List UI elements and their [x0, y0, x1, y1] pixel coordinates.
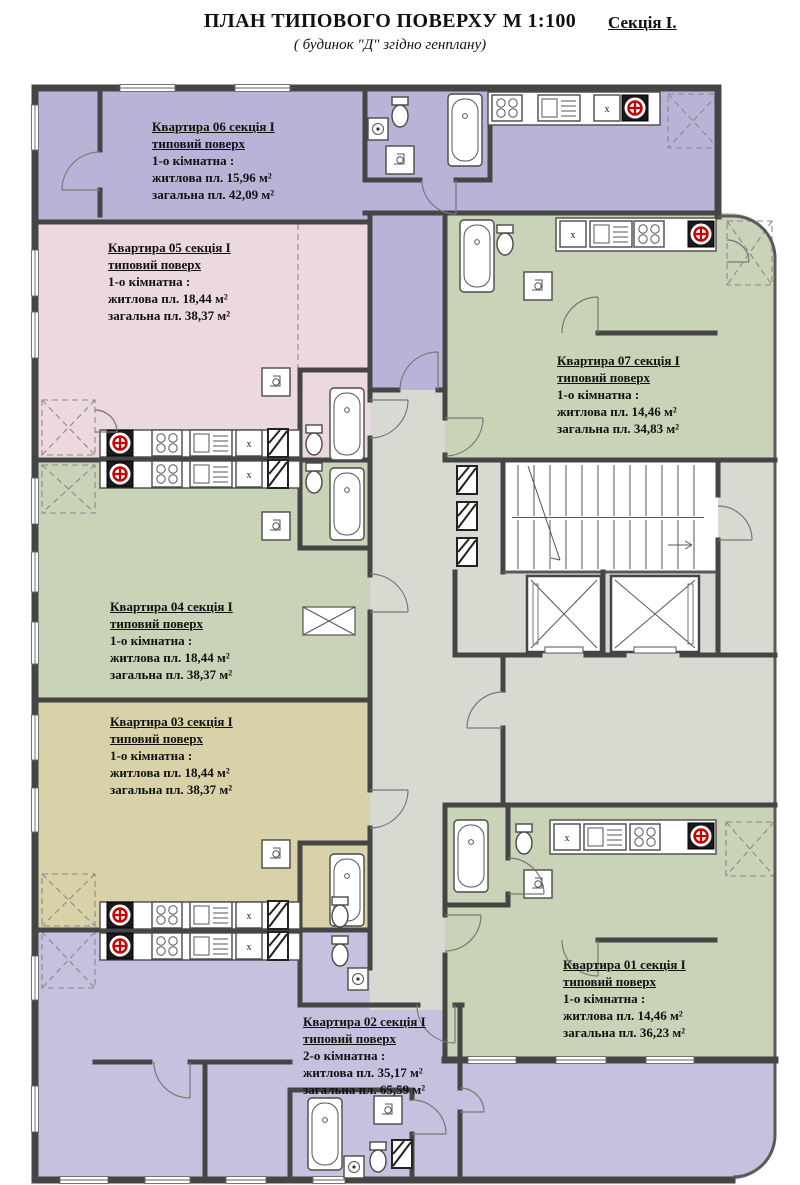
shower-apt03 [262, 840, 290, 868]
washer-apt06 [368, 118, 388, 140]
hob-icon-apt04 [152, 461, 182, 487]
vent-hatch-apt02 [268, 932, 288, 960]
closet-apt04 [303, 607, 355, 635]
apartment-total-area: загальна пл. 36,23 м² [563, 1024, 686, 1041]
toilet-apt04 [306, 463, 322, 493]
shaft-label: х [247, 439, 252, 450]
shaft-hatch-2 [457, 502, 477, 530]
vent-hatch-apt05 [268, 429, 288, 457]
apartment-total-area: загальна пл. 34,83 м² [557, 420, 680, 437]
apartment-living-area: житлова пл. 15,96 м² [152, 169, 275, 186]
sink-icon-apt01 [584, 824, 626, 850]
stove-icon-apt03 [107, 902, 133, 928]
shower-apt05 [262, 368, 290, 396]
apartment-name: Квартира 04 секція I [110, 598, 233, 615]
shaft-label: х [247, 470, 252, 481]
washer-apt02 [348, 968, 368, 990]
sink-icon-apt05 [190, 430, 232, 456]
toilet-apt06 [392, 97, 408, 127]
elevator-1 [527, 576, 601, 653]
toilet-apt07 [497, 225, 513, 255]
stove-icon-apt02 [107, 933, 133, 959]
apartment-floor: типовий поверх [152, 135, 275, 152]
shaft-hatch-3 [457, 538, 477, 566]
vent-hatch-apt03 [268, 901, 288, 929]
stove-icon-apt07 [688, 221, 714, 247]
hob-icon-apt07 [634, 221, 664, 247]
shaft-label: х [247, 911, 252, 922]
apartment-total-area: загальна пл. 65,59 м² [303, 1081, 426, 1098]
apartment-name: Квартира 06 секція I [152, 118, 275, 135]
apartment-rooms: 1-о кімнатна : [152, 152, 275, 169]
bathtub-apt02 [308, 1098, 342, 1170]
shower-apt04 [262, 512, 290, 540]
apartment-name: Квартира 07 секція I [557, 352, 680, 369]
apartment-total-area: загальна пл. 38,37 м² [108, 307, 231, 324]
vent-hatch-apt02-bath [392, 1140, 412, 1168]
sink-icon-apt07 [590, 221, 632, 247]
toilet-apt01 [516, 824, 532, 854]
apartment-floor: типовий поверх [108, 256, 231, 273]
sink-icon-apt02 [190, 933, 232, 959]
apartment-floor: типовий поверх [557, 369, 680, 386]
apartment-rooms: 1-о кімнатна : [563, 990, 686, 1007]
hob-icon-apt03 [152, 902, 182, 928]
apartment-total-area: загальна пл. 42,09 м² [152, 186, 275, 203]
shaft-label: х [247, 942, 252, 953]
apartment-name: Квартира 02 секція I [303, 1013, 426, 1030]
toilet-apt05 [306, 425, 322, 455]
hob-icon-apt06 [492, 95, 522, 121]
hob-icon-apt01 [630, 824, 660, 850]
elevator-2 [611, 576, 699, 653]
shaft-hatch-1 [457, 466, 477, 494]
bathtub-apt01 [454, 820, 488, 892]
apartment-living-area: житлова пл. 18,44 м² [108, 290, 231, 307]
apartment-rooms: 1-о кімнатна : [108, 273, 231, 290]
apartment-living-area: житлова пл. 18,44 м² [110, 649, 233, 666]
bathtub-apt05 [330, 388, 364, 460]
apartment-label-01: Квартира 01 секція I типовий поверх 1-о … [563, 956, 686, 1041]
apartment-floor: типовий поверх [110, 730, 233, 747]
apartment-rooms: 1-о кімнатна : [557, 386, 680, 403]
toilet-apt02-bath [370, 1142, 386, 1172]
stove-icon-apt01 [688, 823, 714, 849]
apartment-living-area: житлова пл. 14,46 м² [563, 1007, 686, 1024]
apartment-living-area: житлова пл. 18,44 м² [110, 764, 233, 781]
hob-icon-apt05 [152, 430, 182, 456]
apartment-label-02: Квартира 02 секція I типовий поверх 2-о … [303, 1013, 426, 1098]
bathtub-apt07 [460, 220, 494, 292]
sink-icon-apt04 [190, 461, 232, 487]
apartment-floor: типовий поверх [303, 1030, 426, 1047]
bathtub-apt06 [448, 94, 482, 166]
apartment-floor: типовий поверх [110, 615, 233, 632]
apartment-total-area: загальна пл. 38,37 м² [110, 781, 233, 798]
shaft-label: х [565, 833, 570, 844]
apartment-total-area: загальна пл. 38,37 м² [110, 666, 233, 683]
zone-terrace [460, 1060, 775, 1180]
floor-plan-page: ПЛАН ТИПОВОГО ПОВЕРХУ М 1:100 Секція I. … [0, 0, 800, 1185]
apartment-name: Квартира 03 секція I [110, 713, 233, 730]
vent-hatch-apt04 [268, 460, 288, 488]
apartment-name: Квартира 01 секція I [563, 956, 686, 973]
shaft-label: х [605, 104, 610, 115]
shower-apt06 [386, 146, 414, 174]
apartment-rooms: 2-о кімнатна : [303, 1047, 426, 1064]
apartment-rooms: 1-о кімнатна : [110, 747, 233, 764]
apartment-floor: типовий поверх [563, 973, 686, 990]
apartment-label-03: Квартира 03 секція I типовий поверх 1-о … [110, 713, 233, 798]
shaft-label: х [571, 230, 576, 241]
apartment-name: Квартира 05 секція I [108, 239, 231, 256]
apartment-rooms: 1-о кімнатна : [110, 632, 233, 649]
apartment-living-area: житлова пл. 35,17 м² [303, 1064, 426, 1081]
shower-apt02-bath [374, 1096, 402, 1124]
shower-apt07 [524, 272, 552, 300]
washer-apt02-bath [344, 1156, 364, 1178]
apartment-living-area: житлова пл. 14,46 м² [557, 403, 680, 420]
apartment-label-07: Квартира 07 секція I типовий поверх 1-о … [557, 352, 680, 437]
stove-icon-apt04 [107, 461, 133, 487]
hob-icon-apt02 [152, 933, 182, 959]
apartment-label-06: Квартира 06 секція I типовий поверх 1-о … [152, 118, 275, 203]
apartment-label-04: Квартира 04 секція I типовий поверх 1-о … [110, 598, 233, 683]
toilet-apt02 [332, 936, 348, 966]
bathtub-apt04 [330, 468, 364, 540]
stove-icon-apt05 [107, 430, 133, 456]
sink-icon-apt03 [190, 902, 232, 928]
apartment-label-05: Квартира 05 секція I типовий поверх 1-о … [108, 239, 231, 324]
stove-icon-apt06 [622, 95, 648, 121]
sink-icon-apt06 [538, 95, 580, 121]
toilet-apt03 [332, 897, 348, 927]
